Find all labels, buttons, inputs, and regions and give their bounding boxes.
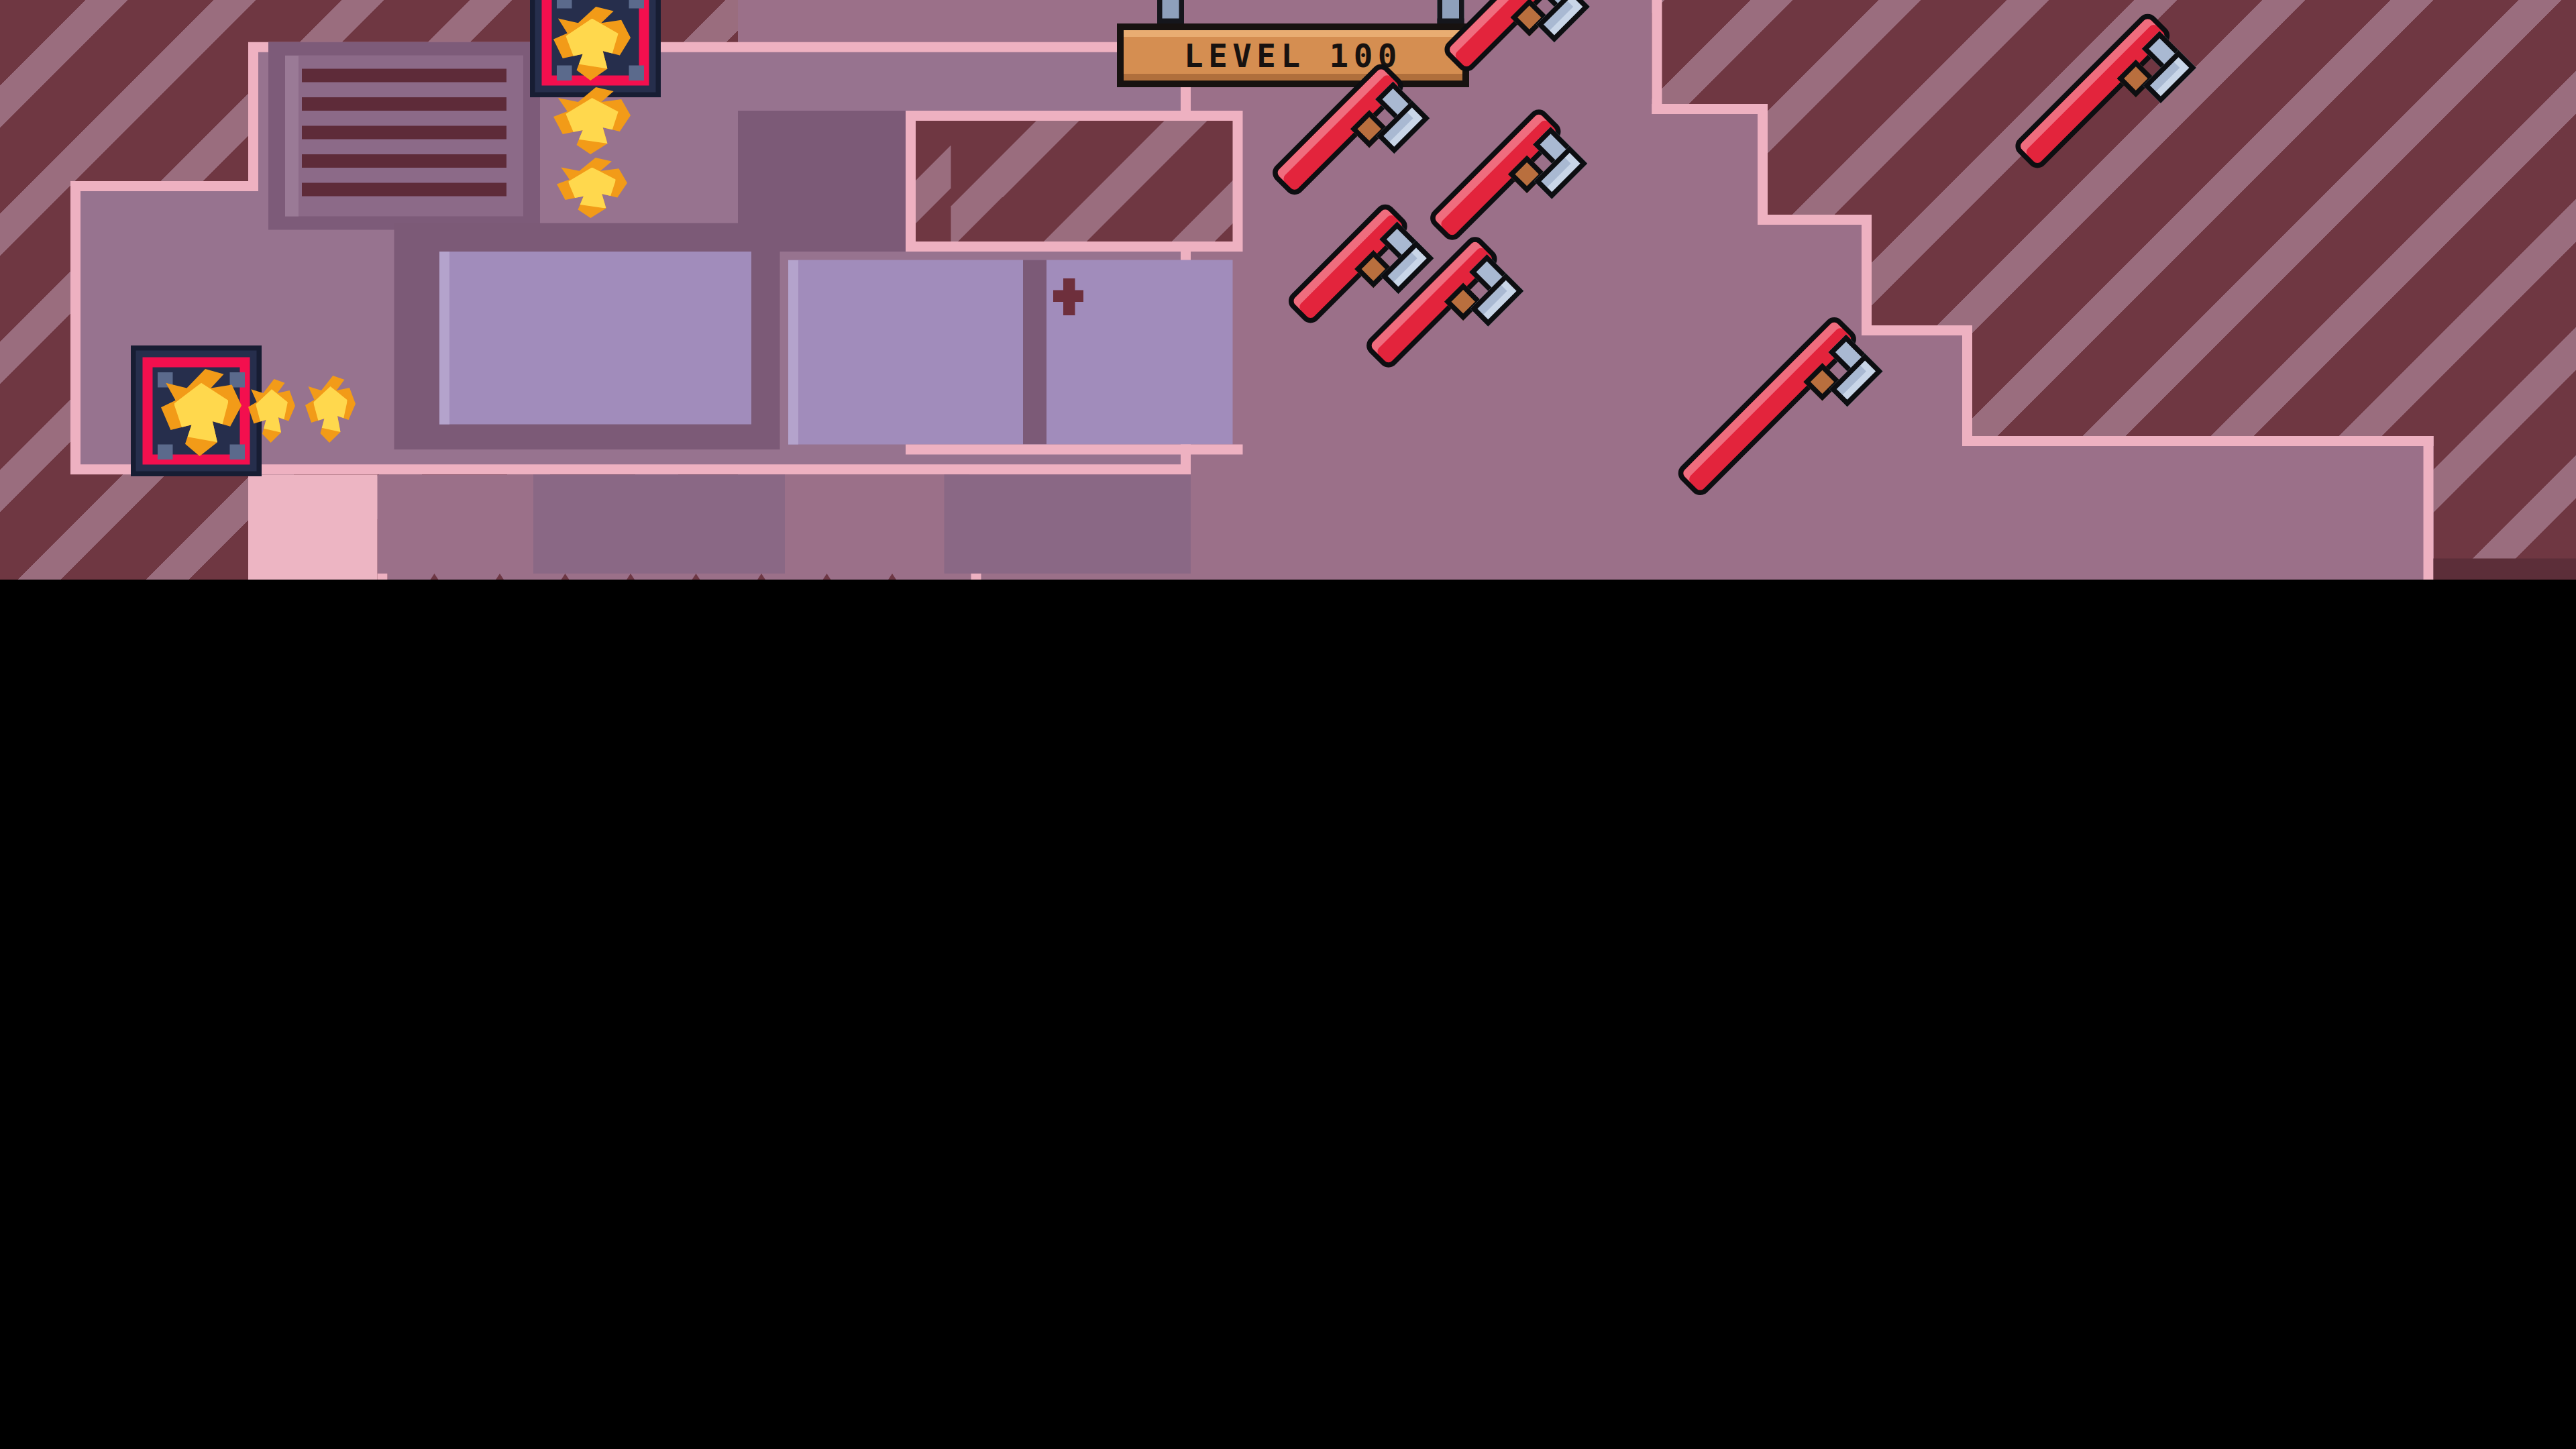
stair-edge xyxy=(1758,104,1768,225)
vent-bar xyxy=(302,126,506,140)
vent-bar xyxy=(302,183,506,197)
tower xyxy=(945,475,1191,574)
stair-edge xyxy=(1652,104,1768,114)
stair-edge xyxy=(1962,436,2434,446)
wall-panel xyxy=(788,260,1233,445)
sword-blade xyxy=(1440,0,1567,76)
flame-box-rivets xyxy=(557,0,572,9)
game-viewport[interactable]: LEVEL 100 xyxy=(0,0,2576,580)
teeth-backing xyxy=(388,574,971,580)
panel-divider xyxy=(1023,260,1046,445)
stair-edge xyxy=(1862,215,1872,335)
stair-edge xyxy=(1962,325,1972,446)
stair-edge xyxy=(1652,0,1662,114)
dark-recess xyxy=(2434,559,2576,580)
stair-edge xyxy=(1758,215,1872,225)
pink-channel xyxy=(248,475,378,580)
slab-edge xyxy=(971,574,981,580)
vent-bar xyxy=(302,97,506,111)
dark-block xyxy=(738,111,906,252)
sign-post xyxy=(1157,0,1184,23)
tower xyxy=(533,475,785,574)
chamber-panel xyxy=(439,252,751,425)
slab-edge xyxy=(378,574,388,580)
ledge-line xyxy=(906,445,1243,455)
vent-bar xyxy=(302,154,506,168)
stair-edge xyxy=(1862,325,1972,335)
vent-bar xyxy=(302,69,506,83)
maroon-cross xyxy=(1053,278,1083,315)
stair-edge xyxy=(2424,436,2434,580)
level-sign: LEVEL 100 xyxy=(1117,23,1469,87)
window-interior xyxy=(916,121,1233,241)
